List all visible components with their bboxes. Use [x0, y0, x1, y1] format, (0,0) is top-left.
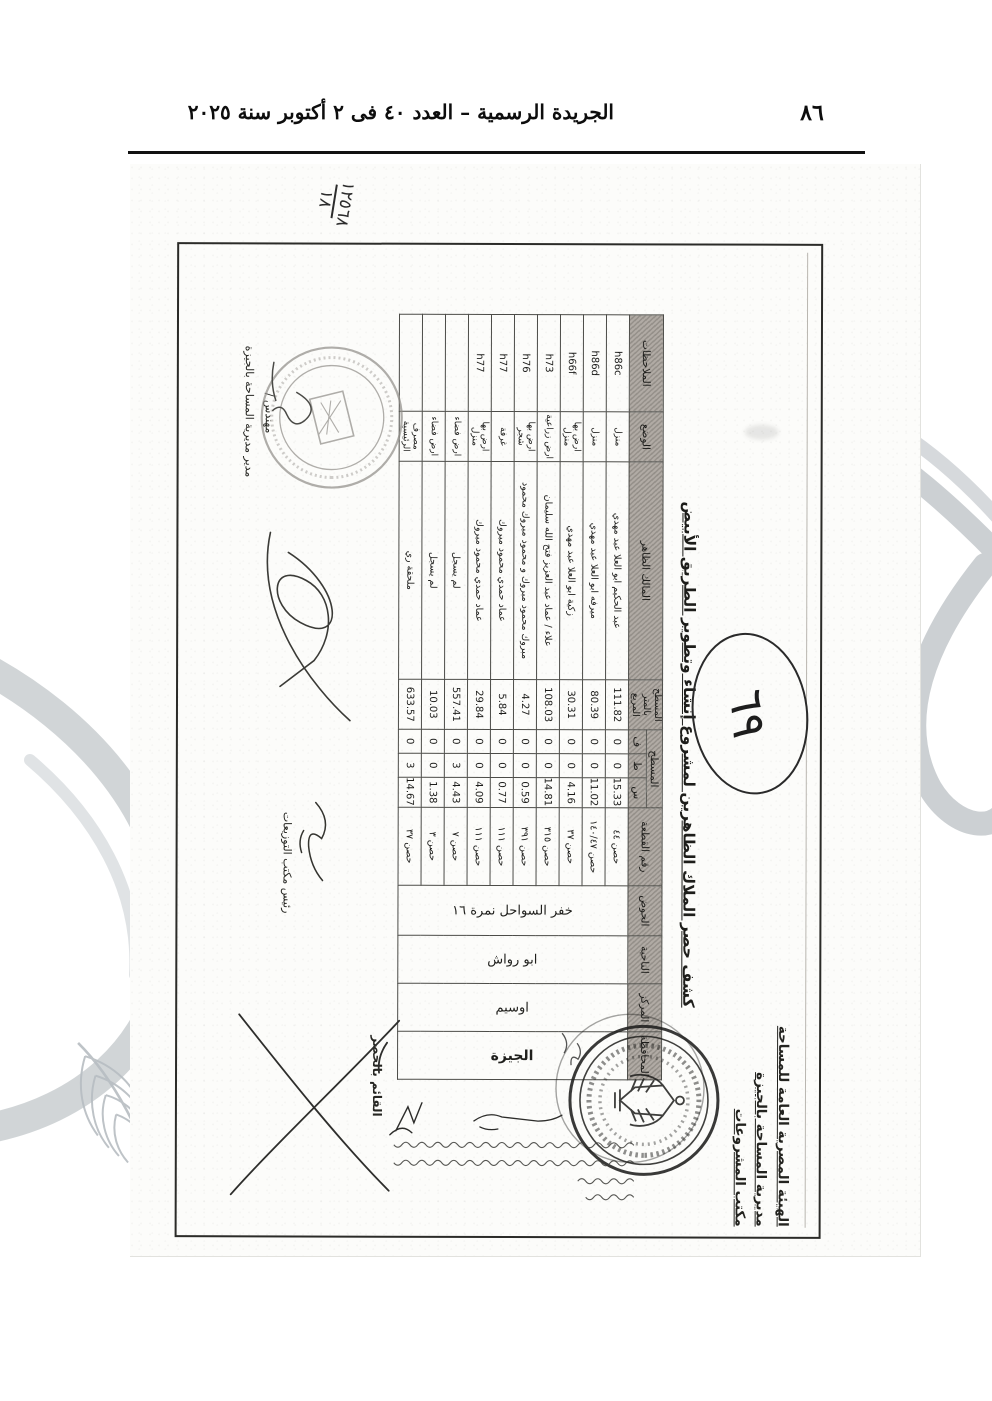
- cell-owner: لم يسجل: [445, 461, 469, 679]
- cell-t: 0: [467, 753, 490, 777]
- cell-notes: [422, 314, 445, 411]
- header-parcel: رقم القطعة: [628, 808, 662, 886]
- letterhead-office: مكتب المشروعات: [728, 897, 750, 1227]
- cell-desc: ارض زراعية: [537, 412, 560, 462]
- cell-parcel: حصن ٣٧: [559, 808, 582, 886]
- cell-notes: [399, 314, 422, 411]
- cell-s: 0.59: [513, 778, 536, 808]
- faint-round-stamp-icon: [262, 347, 402, 487]
- letterhead-directorate: مديرية المساحة بالجيزة: [749, 897, 771, 1227]
- illegible-handwriting-lines: [394, 1142, 634, 1200]
- cell-parcel: حصن ١١١: [490, 807, 513, 885]
- owners-table-body: الجيزةاوسيمابو رواشخفر السواحل نمرة ١٦حص…: [398, 314, 630, 1080]
- cell-f: 0: [605, 730, 628, 754]
- header-description: الوضع: [629, 412, 663, 462]
- cell-t: 0: [536, 754, 559, 778]
- cell-desc: منزل: [583, 412, 606, 462]
- cell-t: 0: [605, 754, 628, 778]
- small-signature-middle: [474, 1115, 562, 1130]
- cell-m2: 30.31: [559, 680, 582, 730]
- header-feddan: ف: [628, 730, 646, 754]
- cell-s: 1.38: [421, 777, 444, 807]
- cell-parcel: حصن ٣٩١: [513, 808, 536, 886]
- header-notes: الملاحظات: [629, 315, 663, 412]
- location-cell-district: ابو رواش: [398, 935, 628, 984]
- cell-desc: ارض بها منزل: [468, 411, 491, 461]
- cell-desc: منزل: [606, 412, 629, 462]
- location-value-district: ابو رواش: [488, 952, 538, 967]
- cell-m2: 5.84: [490, 679, 513, 729]
- cell-parcel: حصن ٣٧: [398, 807, 421, 885]
- cell-m2: 80.39: [582, 680, 605, 730]
- cell-owner: مبروك محمود مبروك و محمود مبروك محمود: [514, 462, 538, 680]
- cell-m2: 557.41: [444, 679, 467, 729]
- cell-desc: مصرف الرئيسية: [399, 411, 422, 461]
- document-title: كشف حصر الملاك الظاهرين لمشروع إنشاء وتط…: [679, 424, 699, 1084]
- cell-f: 0: [582, 730, 605, 754]
- cell-f: 0: [444, 729, 467, 753]
- cell-parcel: حصن ٤٤: [605, 808, 628, 886]
- director-label: مدير مديرية المساحة بالجيزة: [243, 346, 256, 478]
- svg-text:٦٩: ٦٩: [719, 687, 777, 741]
- header-owner: المالك الظاهر: [629, 462, 664, 680]
- cell-notes: h73: [537, 315, 560, 412]
- cell-notes: h86d: [583, 315, 606, 412]
- cell-desc: ارض بها شجر: [514, 412, 537, 462]
- header-basin: الحوض: [628, 886, 662, 936]
- cell-t: 3: [444, 753, 467, 777]
- cell-owner: ميرفه ابو العلا عبد مهدي: [583, 462, 607, 680]
- cell-m2: 111.82: [605, 680, 628, 730]
- cell-f: 0: [513, 730, 536, 754]
- cell-desc: ارض بها منزل: [560, 412, 583, 462]
- location-cell-basin: خفر السواحل نمرة ١٦: [398, 885, 628, 936]
- location-value-basin: خفر السواحل نمرة ١٦: [453, 903, 574, 918]
- cell-s: 4.09: [467, 777, 490, 807]
- gazette-page: { "gazette": { "header_title": "الجريدة …: [0, 0, 992, 1400]
- header-district: الناحية: [628, 936, 662, 984]
- director-prefix: مهندس /: [263, 393, 276, 434]
- location-cell-center: اوسيم: [398, 983, 628, 1032]
- cell-m2: 108.03: [536, 680, 559, 730]
- cell-owner: علاء / عماد عبد العزيز فتح الله سليمان: [537, 462, 561, 680]
- location-value-governorate: الجيزة: [491, 1047, 534, 1063]
- cell-m2: 4.27: [513, 680, 536, 730]
- cell-owner: ملحقة ري: [399, 461, 423, 679]
- distribution-head-label: رئيس مكتب التوزيعات: [280, 812, 293, 914]
- cell-t: 0: [490, 753, 513, 777]
- cell-notes: h86c: [606, 315, 629, 412]
- cell-notes: [445, 314, 468, 411]
- header-center: المركز: [628, 984, 662, 1032]
- cell-notes: h77: [468, 314, 491, 411]
- cell-t: 0: [421, 753, 444, 777]
- cell-desc: ارض فضاء: [422, 411, 445, 461]
- cell-t: 0: [559, 754, 582, 778]
- cell-s: 14.67: [398, 777, 421, 807]
- section-head-signature: [267, 532, 350, 720]
- location-value-center: اوسيم: [496, 1000, 529, 1015]
- cell-notes: h66f: [560, 315, 583, 412]
- scan-content: ١٢٥٦٨ ١٨ الهيئة المصرية العامة للمساحة م…: [0, 0, 992, 1401]
- cell-owner: زكية ابو العلا عبد مهدي: [560, 462, 584, 680]
- small-signature-left: [390, 1103, 422, 1135]
- cell-parcel: حصن ٣١٥: [536, 808, 559, 886]
- header-governorate: المحافظة: [628, 1032, 662, 1080]
- rotated-document: الهيئة المصرية العامة للمساحة مديرية الم…: [175, 242, 820, 1235]
- header-sahm: س: [628, 778, 646, 808]
- letterhead-authority: الهيئة المصرية العامة للمساحة: [771, 897, 793, 1227]
- director-signature: [272, 362, 311, 423]
- cell-desc: غرفة: [491, 411, 514, 461]
- cell-f: 0: [467, 729, 490, 753]
- header-area-m2: المسطح بالمتر المربع: [628, 680, 662, 730]
- cell-s: 4.43: [444, 777, 467, 807]
- cell-m2: 633.57: [398, 679, 421, 729]
- owners-survey-table: المحافظة المركز الناحية الحوض رقم القطعة…: [397, 314, 664, 1081]
- cell-parcel: حصن ١٤٠/٤٧: [582, 808, 605, 886]
- certification-block: [382, 1093, 642, 1219]
- circled-annotation: ٦٩: [683, 627, 816, 800]
- cell-t: 0: [582, 754, 605, 778]
- cell-s: 14.81: [536, 778, 559, 808]
- cell-m2: 10.03: [421, 679, 444, 729]
- cell-owner: عبد الحكيم ابو العلا عبد مهدي: [606, 462, 630, 680]
- cell-t: 3: [398, 753, 421, 777]
- cell-parcel: حصن ١١١: [467, 807, 490, 885]
- header-qirat: ط: [628, 754, 646, 778]
- cell-t: 0: [513, 754, 536, 778]
- cell-s: 0.77: [490, 777, 513, 807]
- cell-m2: 29.84: [467, 679, 490, 729]
- cell-owner: لم يسجل: [422, 461, 446, 679]
- cell-f: 0: [398, 729, 421, 753]
- table-row: الجيزةاوسيمابو رواشخفر السواحل نمرة ١٦حص…: [605, 315, 630, 1080]
- cell-s: 15.33: [605, 778, 628, 808]
- distribution-head-signature: [300, 802, 326, 880]
- cell-f: 0: [490, 729, 513, 753]
- handwritten-reference: ١٢٥٦٨ ١٨: [310, 161, 358, 242]
- cell-f: 0: [421, 729, 444, 753]
- cell-desc: ارض فضاء: [445, 411, 468, 461]
- cell-owner: عماد حمدي محمود مبروك: [491, 461, 515, 679]
- cell-f: 0: [536, 730, 559, 754]
- location-cell-governorate: الجيزة: [398, 1031, 628, 1080]
- header-area-group: المسطح: [646, 730, 662, 808]
- cell-owner: عماد حمدي محمود مبروك: [468, 461, 492, 679]
- letterhead: الهيئة المصرية العامة للمساحة مديرية الم…: [728, 897, 794, 1227]
- cell-f: 0: [559, 730, 582, 754]
- cell-s: 11.02: [582, 778, 605, 808]
- cell-parcel: حصن ٧: [444, 807, 467, 885]
- cell-notes: h76: [514, 315, 537, 412]
- cell-notes: h77: [491, 314, 514, 411]
- cell-parcel: حصن ٣: [421, 807, 444, 885]
- cell-s: 4.16: [559, 778, 582, 808]
